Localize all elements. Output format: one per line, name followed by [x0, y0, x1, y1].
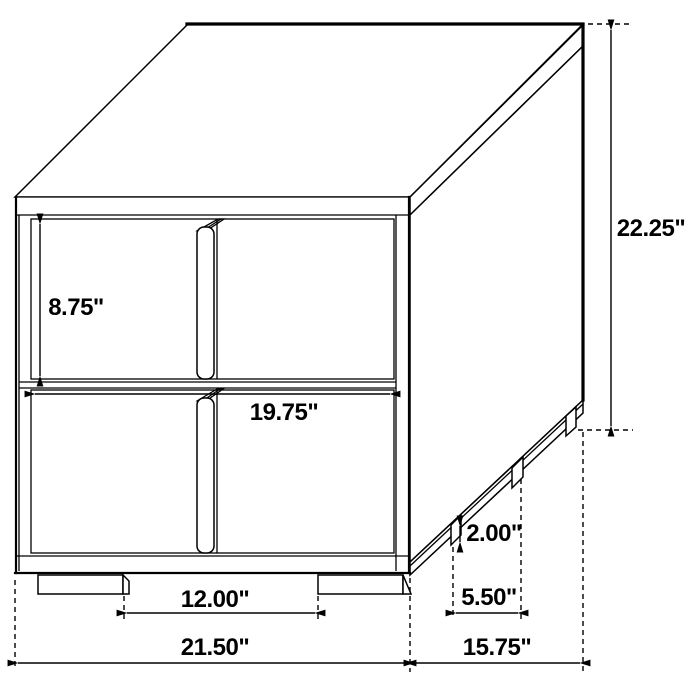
dimension-label-side-foot-spacing: 5.50": [461, 584, 517, 611]
dimension-label-overall-width: 21.50": [181, 634, 249, 661]
front-foot-right: [318, 575, 403, 594]
dimension-label-drawer-opening-height: 8.75": [48, 294, 104, 321]
handle-bottom-bar: [197, 398, 214, 553]
front-foot-left: [38, 575, 123, 594]
dimension-label-overall-height: 22.25": [617, 215, 685, 242]
dimension-label-front-foot-spacing: 12.00": [181, 586, 249, 613]
nightstand-line-drawing: 8.75" 22.25" 19.75" 2.00" 5.50" 12.00" 2…: [0, 0, 700, 700]
handle-top-bar: [197, 227, 214, 379]
front-foot-left-side: [123, 575, 129, 594]
dimension-label-drawer-front-width: 19.75": [250, 399, 318, 426]
nightstand-front: [15, 197, 410, 573]
dimension-label-foot-height: 2.00": [466, 520, 522, 547]
diagram-canvas: 8.75" 22.25" 19.75" 2.00" 5.50" 12.00" 2…: [0, 0, 700, 700]
dimension-label-overall-depth: 15.75": [463, 634, 531, 661]
